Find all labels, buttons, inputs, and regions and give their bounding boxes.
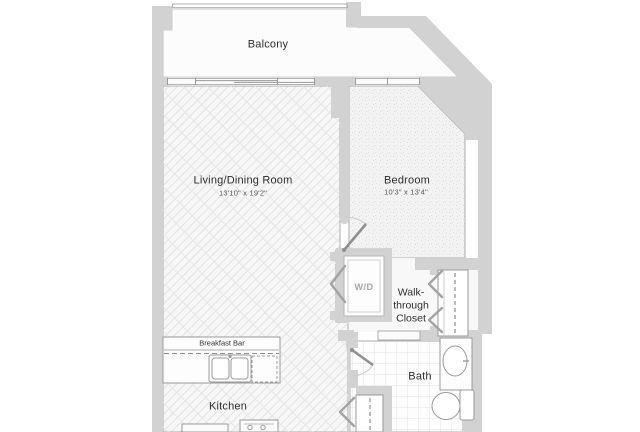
- top-right-wall: [358, 16, 413, 28]
- living-dining-room-dimensions: 13'10" x 19'2": [219, 190, 267, 199]
- bedroom-window: [355, 77, 420, 86]
- bath-label: Bath: [408, 371, 431, 384]
- breakfast-bar-label: Breakfast Bar: [199, 340, 244, 349]
- wardrobe-closet: [438, 270, 468, 336]
- living-dining-room-label: Living/Dining Room: [194, 175, 293, 188]
- kitchen-sink: [209, 355, 251, 382]
- kitchen-closet: [356, 395, 383, 432]
- toilet: [432, 390, 474, 420]
- floor-plan-drawing: [0, 0, 640, 432]
- kitchen-label: Kitchen: [209, 401, 247, 414]
- kitchen-closet-wall-v: [383, 386, 392, 432]
- bath-left-wall-stub: [349, 370, 358, 388]
- cooktop: [240, 420, 278, 432]
- bedroom-label: Bedroom: [384, 175, 430, 188]
- living-bedroom-wall-tip: [340, 214, 349, 224]
- bath-top-wall-left: [338, 330, 354, 341]
- living-room-window-sliding-door: [167, 77, 315, 86]
- living-bedroom-wall: [340, 86, 349, 218]
- walk-through-closet-label: Walk-through Closet: [382, 287, 440, 326]
- balcony-label: Balcony: [248, 39, 289, 52]
- bedroom-bottom-wall: [415, 258, 478, 270]
- appliance-left: [182, 424, 228, 432]
- balcony-railing: [172, 4, 348, 8]
- balcony-corner-wall: [152, 6, 172, 30]
- vanity-sink: [440, 338, 472, 390]
- bath-half-wall: [378, 331, 420, 340]
- wd-hinge-nub-bottom: [330, 311, 339, 320]
- windows: [167, 77, 420, 86]
- left-wall: [152, 6, 163, 432]
- bedroom-dimensions: 10'3" x 13'4": [384, 189, 428, 198]
- wd-hinge-nub-top: [330, 252, 339, 261]
- washer-dryer-label: W/D: [355, 282, 374, 292]
- right-wall-upper: [478, 88, 492, 334]
- floor-plan: Balcony Living/Dining Room 13'10" x 19'2…: [0, 0, 640, 432]
